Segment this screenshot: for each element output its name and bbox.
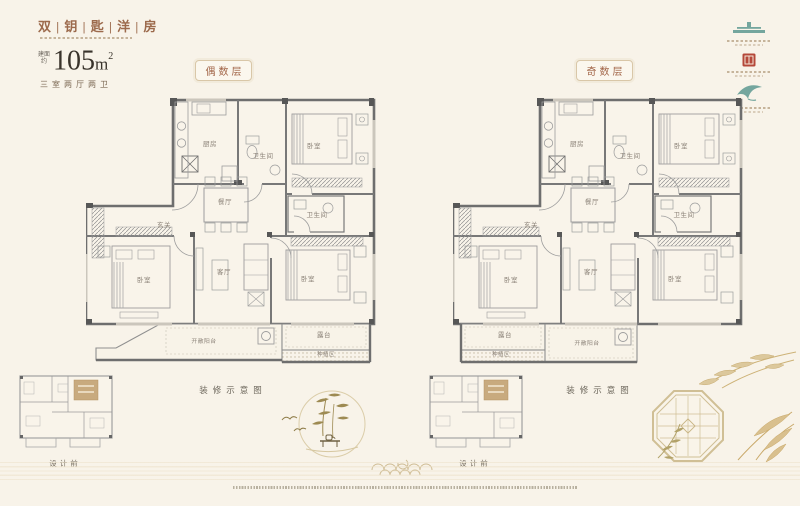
mini-balcony	[70, 438, 100, 447]
area-prefix: 建面 约	[36, 52, 52, 66]
leaf-blades	[699, 354, 784, 384]
leaf-stems	[738, 412, 794, 460]
room-label-bath-top: 卫生间	[253, 151, 274, 160]
floorplan-odd: 厨房卫生间卧室卫生间餐厅玄关卧室客厅卧室露台种植区开敞阳台	[453, 96, 743, 366]
room-spec: 三室两厅两卫	[40, 79, 112, 90]
bamboo-stem	[333, 404, 334, 438]
room-label-open-balcony: 开敞阳台	[574, 339, 599, 347]
column-block	[369, 232, 374, 237]
mini-plan-left	[12, 372, 120, 456]
bed-blanket	[479, 262, 491, 308]
room-label-bath-mid: 卫生间	[307, 210, 328, 219]
column-block	[453, 319, 459, 324]
room-label-bedroom-top: 卧室	[307, 141, 321, 150]
mini-column	[20, 376, 23, 379]
room-label-kitchen: 厨房	[570, 139, 584, 148]
room-label-open-balcony: 开敞阳台	[191, 337, 216, 345]
room-label-living: 客厅	[217, 267, 231, 276]
bamboo-stem	[323, 398, 326, 436]
column-block	[86, 203, 93, 208]
mini-column	[519, 376, 522, 379]
column-block	[86, 319, 92, 324]
seal-icon	[742, 53, 756, 67]
column-block	[634, 232, 639, 237]
column-block	[282, 98, 288, 104]
column-block	[736, 98, 741, 106]
wardrobe-hatch	[292, 178, 362, 187]
room-label-bath-mid: 卫生间	[674, 210, 695, 219]
column-block	[190, 232, 195, 237]
ground-line	[306, 447, 358, 452]
wardrobe-hatch	[659, 178, 729, 187]
floorplan-even: 厨房卫生间卧室卫生间餐厅玄关卧室客厅卧室开敞阳台露台种植区	[86, 96, 376, 366]
room-label-bedroom-right: 卧室	[668, 274, 682, 283]
area-unit: m	[95, 54, 108, 73]
column-block	[649, 98, 655, 104]
mini-column	[430, 376, 433, 379]
open-balcony-area	[96, 324, 282, 360]
room-label-entry: 玄关	[157, 220, 171, 229]
mini-column	[109, 376, 112, 379]
column-block	[736, 232, 741, 237]
pinstripe-band	[0, 462, 800, 483]
logo2-caption	[727, 71, 771, 73]
logo2-subcaption	[735, 75, 763, 77]
bed-blanket	[286, 250, 298, 300]
logo1-subcaption	[735, 44, 763, 46]
floor-tag-even: 偶数层	[195, 60, 252, 81]
bamboo-leaves	[312, 394, 349, 425]
pavilion-finial	[747, 22, 751, 27]
title-subtext	[40, 37, 132, 39]
bird-tail	[748, 99, 756, 100]
mini-column	[430, 435, 433, 438]
room-label-dining: 餐厅	[585, 197, 599, 206]
column-block	[557, 232, 562, 237]
washer-box	[258, 328, 274, 344]
mini-callout	[74, 380, 98, 400]
area-number: 105	[53, 45, 95, 76]
room-label-planting: 种植区	[492, 350, 510, 358]
wardrobe-hatch	[291, 237, 363, 246]
wardrobe-hatch	[658, 237, 730, 246]
logo1-caption	[727, 40, 771, 42]
circle-frame	[299, 391, 365, 457]
room-label-living: 客厅	[584, 267, 598, 276]
room-label-bedroom-right: 卧室	[301, 274, 315, 283]
mini-balcony	[480, 438, 510, 447]
tea-table	[320, 435, 340, 447]
bed-blanket	[112, 262, 124, 308]
poster-title: 双 | 钥 | 匙 | 洋 | 房	[38, 16, 157, 35]
mini-column	[519, 435, 522, 438]
bed-blanket	[659, 114, 671, 164]
pavilion-icon	[731, 20, 767, 36]
area-exponent: 2	[108, 51, 113, 62]
mini-balcony	[26, 438, 56, 447]
gold-leaves-top-right	[686, 344, 798, 396]
room-label-bedroom-top: 卧室	[674, 141, 688, 150]
room-label-bedroom-left: 卧室	[504, 275, 518, 284]
area-value: 105m2	[53, 43, 113, 78]
octagon-window-art	[650, 388, 726, 464]
room-label-planting: 种植区	[317, 350, 335, 358]
room-label-kitchen: 厨房	[203, 139, 217, 148]
washer-box	[615, 329, 631, 345]
column-block	[736, 319, 741, 324]
mini-callout	[484, 380, 508, 400]
pavilion-base	[733, 30, 765, 33]
bed-blanket	[653, 250, 665, 300]
room-label-terrace: 露台	[317, 330, 331, 339]
bed-blanket	[292, 114, 304, 164]
column-block	[267, 232, 272, 237]
room-label-dining: 餐厅	[218, 197, 232, 206]
area-prefix-line2: 约	[36, 59, 52, 66]
gold-leaves-bottom-right	[728, 408, 800, 470]
room-label-entry: 玄关	[524, 220, 538, 229]
pavilion-upper-roof	[737, 27, 761, 29]
floor-tag-odd: 奇数层	[576, 60, 633, 81]
column-block	[453, 203, 460, 208]
column-block	[369, 319, 374, 324]
mini-plan-right	[422, 372, 530, 456]
column-block	[369, 98, 374, 106]
poster-canvas: 双 | 钥 | 匙 | 洋 | 房 建面 约 105m2 三室两厅两卫 偶数层 …	[0, 0, 800, 506]
mini-balcony	[436, 438, 466, 447]
mini-column	[20, 435, 23, 438]
bamboo-circle-art	[276, 386, 372, 462]
room-label-bedroom-left: 卧室	[137, 275, 151, 284]
room-label-bath-top: 卫生间	[620, 151, 641, 160]
mini-column	[109, 435, 112, 438]
room-label-terrace: 露台	[498, 330, 512, 339]
birds-art	[282, 417, 306, 431]
disclaimer-text	[233, 486, 577, 489]
area-prefix-line1: 建面	[36, 52, 52, 59]
